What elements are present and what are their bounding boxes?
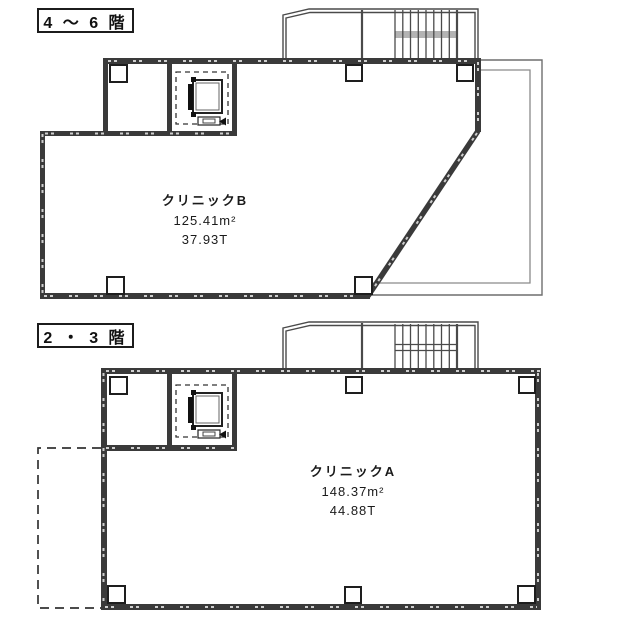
penthouse-inner-line [286,326,475,372]
wall-left [40,131,45,298]
floorplan-sheet: 4 ～ 6 階 2 ・ 3 階 [0,0,620,618]
floorplan-drawing: クリニックB 125.41m² 37.93T [0,0,620,618]
upper-wall-hatching [43,61,482,296]
column [108,586,125,603]
upper-elevator [176,72,228,126]
dashed-annex-outline [38,448,101,608]
wall-top [101,368,541,374]
column [518,586,535,603]
lower-elevator [176,385,228,439]
wall-stair-elevator-divider [167,374,172,451]
elevator-door [198,430,220,438]
column [107,277,124,294]
elevator-car [193,393,222,426]
elevator-door [198,117,220,125]
lower-unit-name: クリニックA [310,464,396,479]
upper-plan: クリニックB 125.41m² 37.93T [40,9,542,299]
elevator-corner-block [191,77,196,82]
reference-outer-rect [370,60,542,295]
elevator-car [193,80,222,113]
upper-columns [107,65,473,294]
elevator-corner-block [191,425,196,430]
wall-notch-horizontal [40,131,237,136]
column [519,377,535,393]
stair-treads [395,324,457,368]
column [110,65,127,82]
wall-bottom [101,604,541,610]
upper-lowerfloor-reference-outline [370,60,542,295]
wall-stair-elevator-divider [167,58,172,136]
column [345,587,361,603]
upper-unit-label: クリニックB 125.41m² 37.93T [162,193,248,247]
wall-elevator-right [232,374,237,451]
elevator-corner-block [191,112,196,117]
lower-unit-label: クリニックA 148.37m² 44.88T [310,464,396,518]
elevator-guide-rail [188,84,193,110]
lower-plan: クリニックA 148.37m² 44.88T [38,322,541,610]
upper-unit-name: クリニックB [162,193,248,208]
elevator-guide-rail [188,397,193,423]
column [110,377,127,394]
upper-staircase [395,10,457,58]
column [457,65,473,81]
column [346,65,362,81]
upper-walls [40,58,481,299]
upper-unit-tsubo: 37.93T [182,232,228,247]
column [346,377,362,393]
elevator-corner-block [191,390,196,395]
column [355,277,372,294]
wall-elevator-right [232,58,237,136]
lower-unit-area: 148.37m² [322,484,385,499]
upper-unit-area: 125.41m² [174,213,237,228]
lower-staircase [395,324,457,368]
wall-protrusion-left [103,58,108,136]
lower-unit-tsubo: 44.88T [330,503,376,518]
